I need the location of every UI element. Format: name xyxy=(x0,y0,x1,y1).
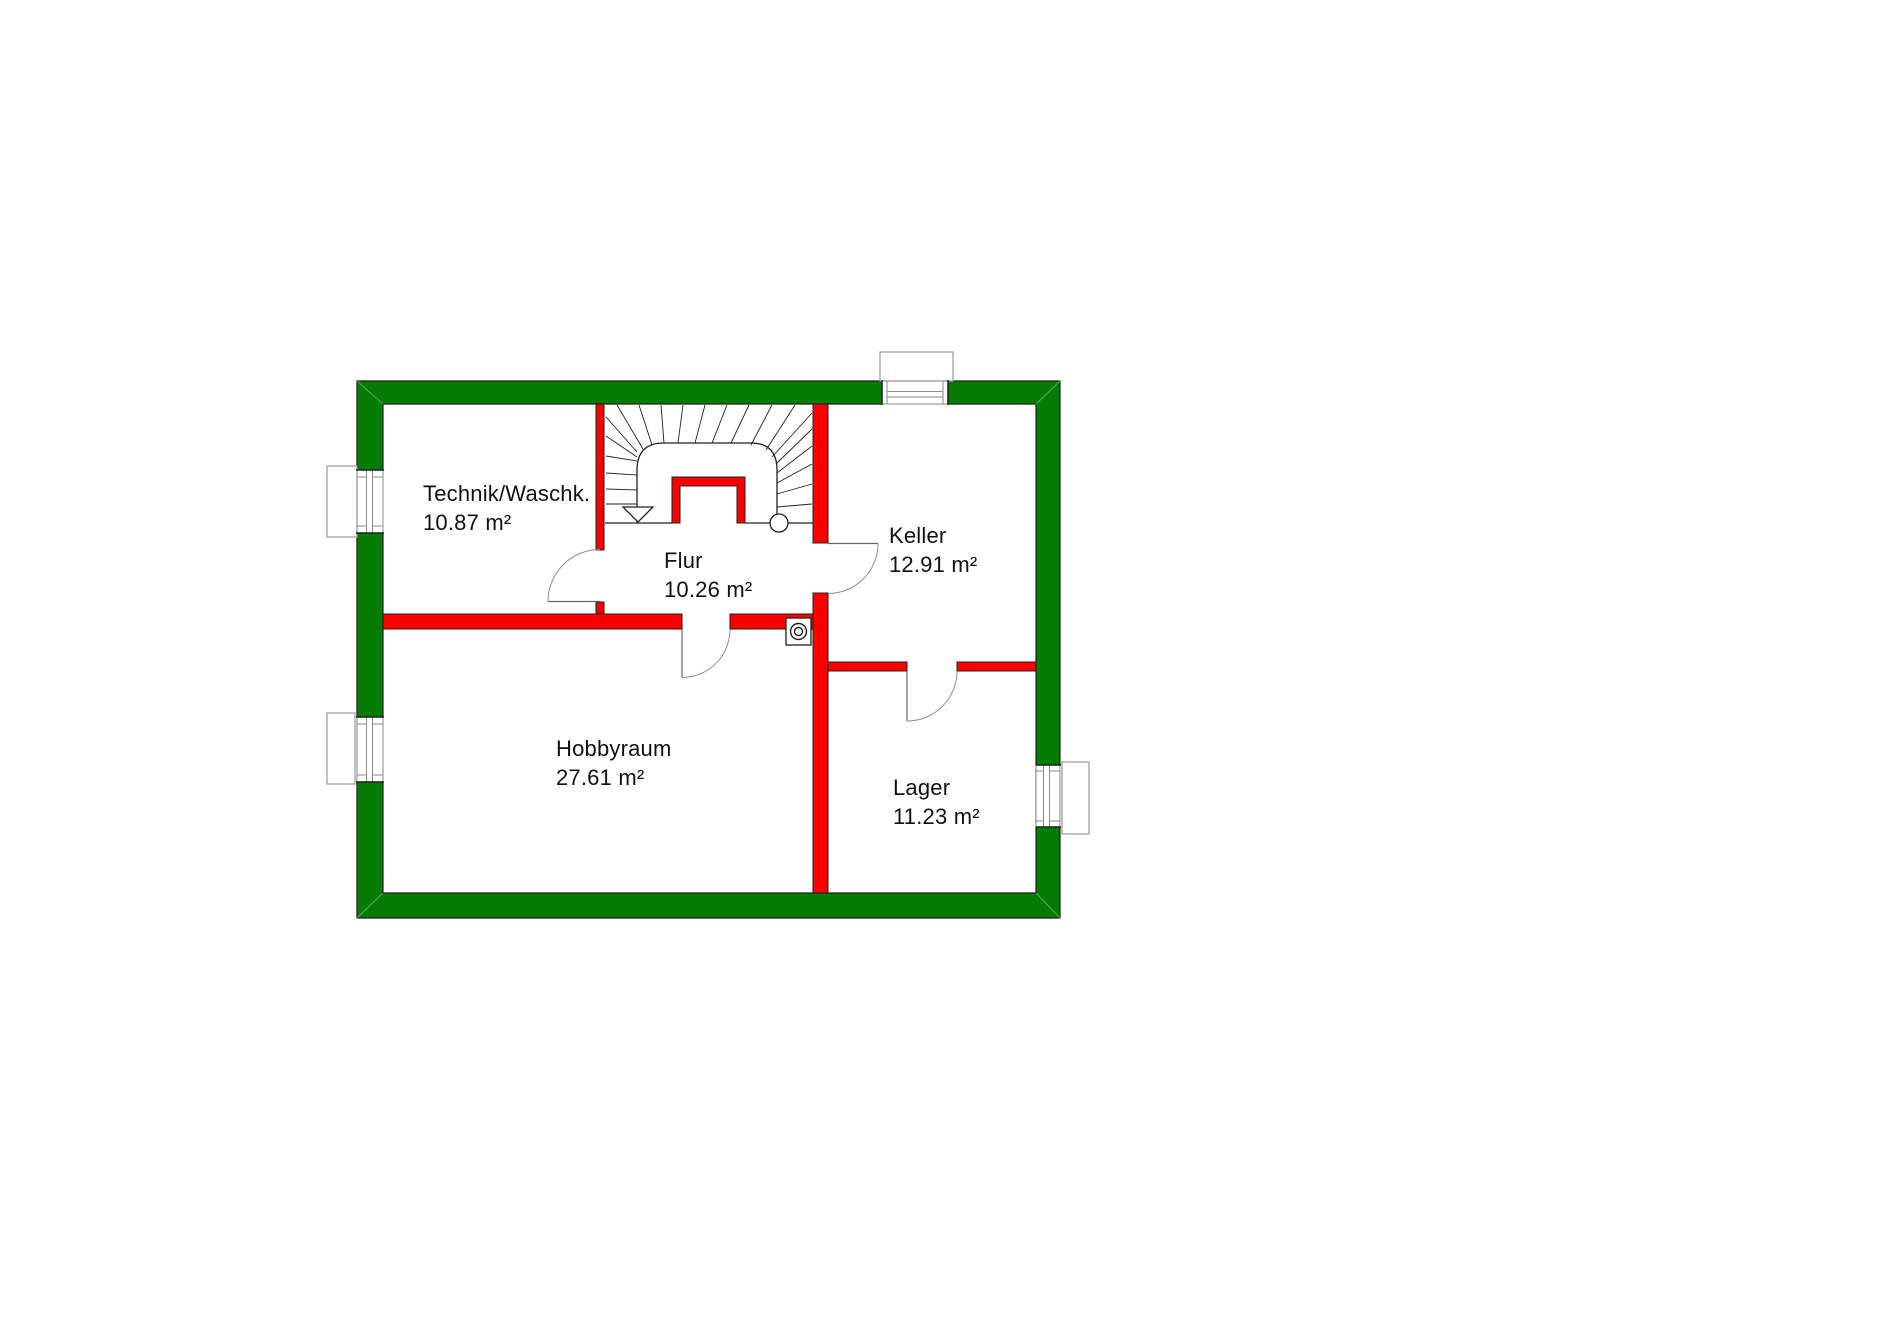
room-name: Flur xyxy=(664,546,752,575)
window-glazing xyxy=(367,717,373,782)
window-ledge xyxy=(1062,762,1089,834)
stair-direction-arrow-icon xyxy=(623,507,653,522)
wall-keller-lager-right xyxy=(957,662,1036,671)
room-area: 11.23 m² xyxy=(893,802,980,831)
door-swing-arc xyxy=(682,630,730,678)
room-label-flur: Flur 10.26 m² xyxy=(664,546,752,604)
door-lager xyxy=(907,671,957,721)
stair-walkline-start-icon xyxy=(770,514,788,532)
wall-stair-core-u xyxy=(672,477,745,523)
wall-keller-lager-left xyxy=(828,662,907,671)
room-label-keller: Keller 12.91 m² xyxy=(889,521,977,579)
window-right xyxy=(1036,762,1090,834)
window-top xyxy=(880,352,953,405)
window-left-lower xyxy=(327,713,385,784)
door-keller xyxy=(828,544,878,594)
room-area: 10.26 m² xyxy=(664,575,752,604)
window-glazing xyxy=(887,392,943,398)
staircase xyxy=(605,405,813,532)
window-left-upper xyxy=(327,466,385,537)
wall-hobbyraum-lager xyxy=(813,593,828,893)
exterior-wall-band xyxy=(357,381,1060,918)
window-ledge xyxy=(327,713,355,784)
room-name: Technik/Waschk. xyxy=(423,479,590,508)
door-swing-arc xyxy=(548,550,600,602)
wall-stairs-keller xyxy=(813,404,828,543)
room-area: 27.61 m² xyxy=(556,763,672,792)
room-name: Hobbyraum xyxy=(556,734,672,763)
wall-technik-hobbyraum xyxy=(383,614,682,629)
drain-symbol xyxy=(786,618,811,645)
door-swing-arc xyxy=(828,544,878,594)
wall-stairs-technik xyxy=(596,404,604,550)
room-label-lager: Lager 11.23 m² xyxy=(893,773,980,831)
room-name: Lager xyxy=(893,773,980,802)
room-area: 10.87 m² xyxy=(423,508,590,537)
door-hobbyraum xyxy=(682,630,730,678)
floor-plan-canvas: Technik/Waschk. 10.87 m² Flur 10.26 m² K… xyxy=(0,0,1900,1344)
room-area: 12.91 m² xyxy=(889,550,977,579)
drain-box xyxy=(786,618,811,645)
window-glazing xyxy=(1044,765,1050,827)
window-glazing xyxy=(367,470,373,533)
room-name: Keller xyxy=(889,521,977,550)
exterior-walls xyxy=(357,381,1060,918)
window-ledge xyxy=(327,466,357,537)
window-ledge xyxy=(880,352,953,381)
wall-stub-technik-door xyxy=(596,602,604,615)
door-technik xyxy=(548,550,600,602)
room-label-hobbyraum: Hobbyraum 27.61 m² xyxy=(556,734,672,792)
floor-plan-drawing xyxy=(0,0,1900,1344)
door-swing-arc xyxy=(907,671,957,721)
room-label-technik: Technik/Waschk. 10.87 m² xyxy=(423,479,590,537)
